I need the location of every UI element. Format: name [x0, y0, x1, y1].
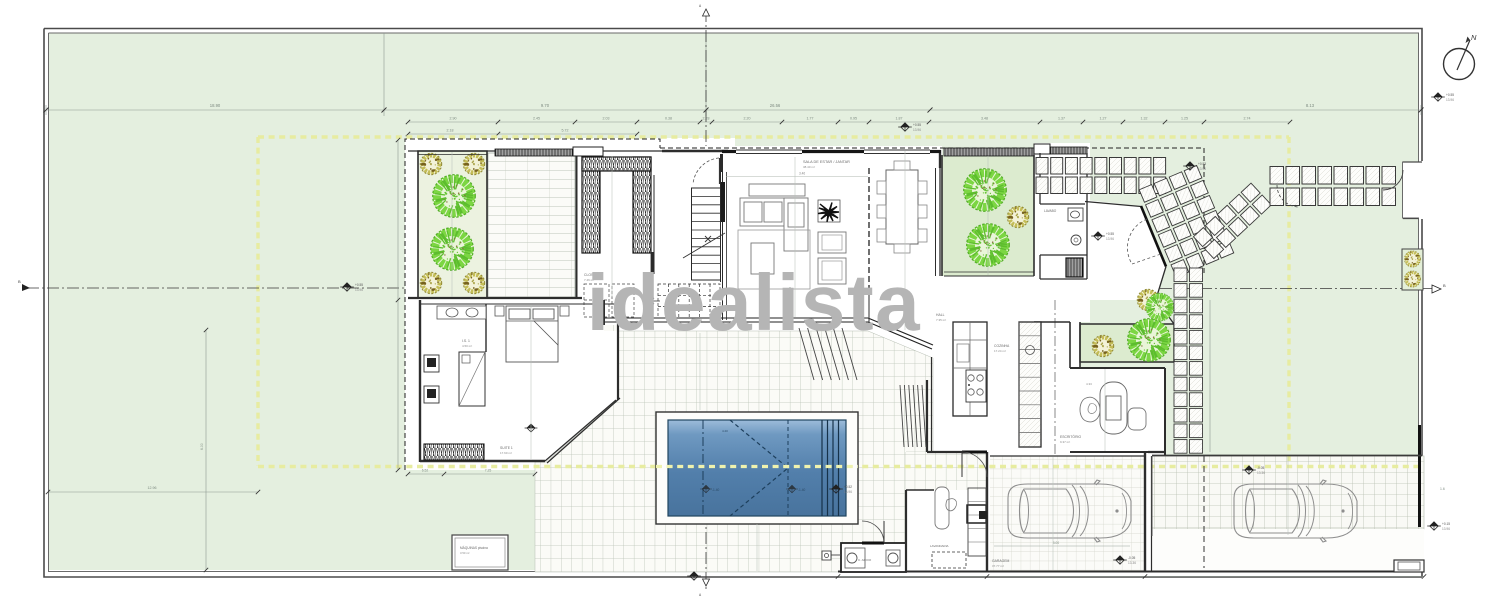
svg-text:17.60 m²: 17.60 m²: [500, 451, 512, 455]
svg-text:13.96: 13.96: [355, 288, 363, 292]
svg-text:1.32: 1.32: [1141, 117, 1148, 121]
svg-text:1.6: 1.6: [1440, 487, 1445, 491]
svg-text:2.74: 2.74: [1244, 117, 1251, 121]
svg-text:1.27: 1.27: [1100, 117, 1107, 121]
svg-text:+0.52: +0.52: [844, 485, 852, 489]
svg-text:6.52: 6.52: [422, 469, 429, 473]
svg-text:B: B: [18, 279, 21, 284]
svg-text:37.77 m²: 37.77 m²: [992, 564, 1004, 568]
svg-text:5.00: 5.00: [1053, 541, 1059, 545]
svg-text:ESCRITÓRIO: ESCRITÓRIO: [1060, 434, 1081, 439]
svg-text:13.36: 13.36: [1128, 561, 1136, 565]
svg-text:2.20: 2.20: [744, 117, 751, 121]
svg-text:4.50 m²: 4.50 m²: [462, 344, 472, 348]
svg-text:+0.55: +0.55: [355, 283, 363, 287]
svg-text:13.96: 13.96: [844, 490, 852, 494]
svg-text:13.96: 13.96: [1198, 167, 1206, 171]
svg-text:12.96: 12.96: [148, 486, 157, 490]
svg-text:MÁQUINAS piscina: MÁQUINAS piscina: [460, 546, 488, 550]
svg-text:4.33: 4.33: [1086, 382, 1092, 386]
svg-text:GARAGEM: GARAGEM: [992, 559, 1010, 563]
svg-text:26.56: 26.56: [770, 103, 781, 108]
svg-text:7.25: 7.25: [485, 469, 492, 473]
svg-text:LAVABO: LAVABO: [1044, 209, 1057, 213]
svg-text:1.87: 1.87: [896, 117, 903, 121]
svg-text:-0.05: -0.05: [1128, 556, 1135, 560]
svg-text:2.03: 2.03: [603, 117, 610, 121]
svg-text:+0.55: +0.55: [1106, 232, 1114, 236]
svg-text:1.37: 1.37: [1058, 117, 1065, 121]
svg-text:0.38: 0.38: [665, 117, 672, 121]
svg-text:3.48: 3.48: [981, 117, 988, 121]
svg-text:N: N: [1471, 33, 1477, 42]
svg-text:0.95: 0.95: [850, 117, 857, 121]
svg-text:18.90: 18.90: [210, 103, 221, 108]
svg-text:7.35 m²: 7.35 m²: [936, 318, 946, 322]
svg-text:2.18: 2.18: [447, 129, 454, 133]
svg-text:LAVANDARIA: LAVANDARIA: [930, 544, 949, 548]
svg-text:9.70: 9.70: [541, 103, 550, 108]
svg-text:HALL: HALL: [936, 313, 945, 317]
svg-text:I.S. 1: I.S. 1: [462, 339, 470, 343]
svg-text:3.50 m²: 3.50 m²: [460, 551, 470, 555]
svg-text:idealista: idealista: [587, 258, 922, 347]
svg-text:-1.40: -1.40: [798, 488, 805, 492]
svg-text:1.77: 1.77: [807, 117, 814, 121]
svg-text:8.13: 8.13: [1306, 103, 1315, 108]
svg-text:COZINHA: COZINHA: [994, 344, 1010, 348]
svg-text:1.25: 1.25: [1181, 117, 1188, 121]
svg-text:4.20: 4.20: [722, 429, 728, 433]
svg-text:38.40 m²: 38.40 m²: [803, 165, 815, 169]
svg-text:5.72: 5.72: [562, 129, 569, 133]
svg-text:17.24 m²: 17.24 m²: [994, 349, 1006, 353]
svg-text:C. APOIO: C. APOIO: [858, 558, 872, 562]
svg-text:+0.55: +0.55: [1446, 93, 1454, 97]
svg-text:+0.53: +0.53: [1198, 162, 1206, 166]
svg-text:6.00: 6.00: [200, 443, 204, 450]
svg-text:SUITE 1: SUITE 1: [500, 446, 513, 450]
svg-text:2.45: 2.45: [533, 117, 540, 121]
svg-text:3.46: 3.46: [799, 172, 805, 176]
svg-text:+0.15: +0.15: [1442, 522, 1450, 526]
svg-text:2.90: 2.90: [450, 117, 457, 121]
svg-text:-0.05: -0.05: [1257, 466, 1264, 470]
svg-text:9.37 m²: 9.37 m²: [1060, 440, 1070, 444]
svg-text:-1.40: -1.40: [712, 488, 719, 492]
svg-text:13.36: 13.36: [1257, 471, 1265, 475]
svg-text:SALA DE ESTAR / JANTAR: SALA DE ESTAR / JANTAR: [803, 160, 850, 164]
svg-text:13.96: 13.96: [1442, 527, 1450, 531]
svg-text:13.96: 13.96: [913, 128, 921, 132]
svg-text:13.96: 13.96: [1106, 237, 1114, 241]
svg-text:13.96: 13.96: [1446, 98, 1454, 102]
svg-text:B: B: [1443, 283, 1446, 288]
svg-text:+0.55: +0.55: [913, 123, 921, 127]
